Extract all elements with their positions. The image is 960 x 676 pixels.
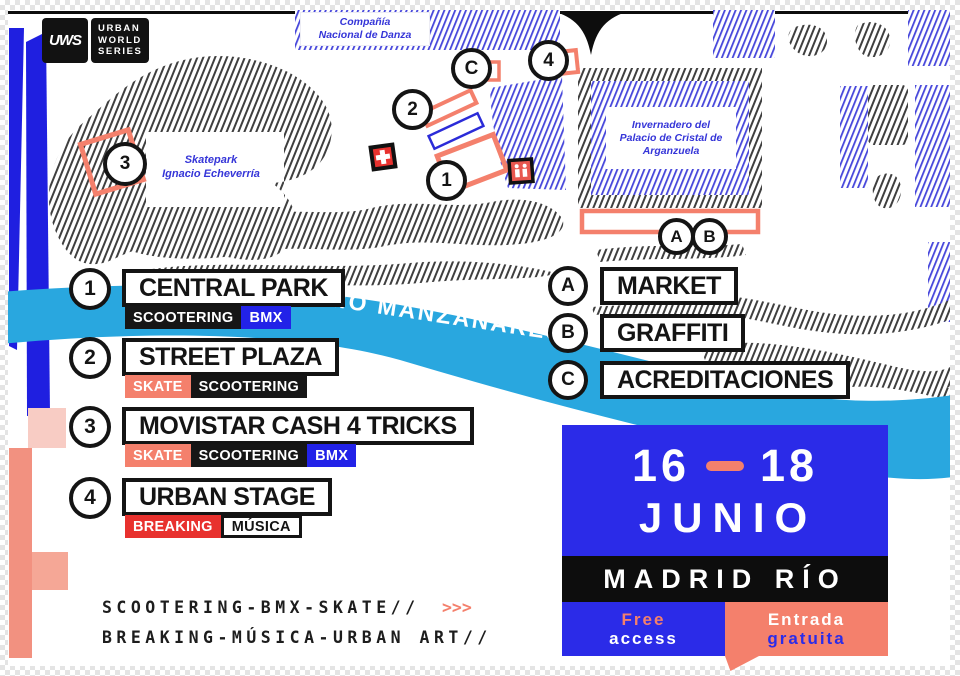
- tag-skate: SKATE: [125, 444, 191, 467]
- legend-letter-c: C: [548, 360, 588, 400]
- event-day-end: 18: [760, 440, 818, 492]
- legend-num-2: 2: [69, 337, 111, 379]
- legend-letter-a: A: [548, 266, 588, 306]
- entrada-gratuita-label: Entrada gratuita: [725, 602, 888, 656]
- disciplines-line-1: SCOOTERING-BMX-SKATE// >>>: [102, 593, 492, 623]
- entrada-line: gratuita: [767, 629, 845, 648]
- map-marker-1: 1: [426, 160, 467, 201]
- map-marker-3: 3: [103, 142, 147, 186]
- map-marker-c: C: [451, 48, 492, 89]
- tag-scootering: SCOOTERING: [125, 306, 241, 329]
- free-access-line: Free: [622, 610, 666, 629]
- date-dash-icon: [706, 461, 744, 471]
- map-marker-2: 2: [392, 89, 433, 130]
- free-access-line: access: [609, 629, 678, 648]
- disciplines-text: SCOOTERING-BMX-SKATE//: [102, 598, 420, 617]
- label-skatepark-ignacio-echeverria: Skatepark Ignacio Echeverría: [150, 142, 272, 192]
- legend-name-central-park: CENTRAL PARK: [122, 269, 345, 307]
- disciplines-footer: SCOOTERING-BMX-SKATE// >>> BREAKING-MÚSI…: [102, 593, 492, 653]
- tag-bmx: BMX: [241, 306, 290, 329]
- map-marker-a: A: [658, 218, 695, 255]
- event-dates: 16 18: [632, 440, 818, 492]
- legend-tags-3: SKATE SCOOTERING BMX: [125, 444, 356, 467]
- logo-line: URBAN: [98, 23, 149, 35]
- event-month: JUNIO: [639, 494, 817, 542]
- map-marker-4: 4: [528, 40, 569, 81]
- legend-tags-1: SCOOTERING BMX: [125, 306, 291, 329]
- uws-logo-text: URBAN WORLD SERIES: [91, 18, 149, 63]
- uws-logo: UWS URBAN WORLD SERIES: [42, 18, 149, 63]
- tag-bmx: BMX: [307, 444, 356, 467]
- free-access-label: Free access: [562, 602, 725, 656]
- legend-tags-4: BREAKING MÚSICA: [125, 515, 302, 538]
- event-map-poster: UWS URBAN WORLD SERIES Compañía Nacional…: [0, 0, 960, 676]
- event-location: MADRID RÍO: [562, 556, 888, 602]
- logo-line: WORLD: [98, 35, 149, 47]
- legend-num-3: 3: [69, 406, 111, 448]
- legend-name-urban-stage: URBAN STAGE: [122, 478, 332, 516]
- legend-name-graffiti: GRAFFITI: [600, 314, 745, 352]
- event-day-start: 16: [632, 440, 690, 492]
- label-invernadero-palacio-cristal: Invernadero del Palacio de Cristal de Ar…: [606, 107, 736, 169]
- tag-scootering: SCOOTERING: [191, 375, 307, 398]
- legend-num-4: 4: [69, 477, 111, 519]
- label-compania-nacional-danza: Compañía Nacional de Danza: [300, 12, 430, 46]
- legend-name-street-plaza: STREET PLAZA: [122, 338, 339, 376]
- uws-monogram-icon: UWS: [42, 18, 88, 63]
- legend-name-movistar-cash-4-tricks: MOVISTAR CASH 4 TRICKS: [122, 407, 474, 445]
- legend-num-1: 1: [69, 268, 111, 310]
- map-marker-b: B: [691, 218, 728, 255]
- entrada-line: Entrada: [768, 610, 845, 629]
- legend-letter-b: B: [548, 313, 588, 353]
- arrows-icon: >>>: [442, 598, 472, 617]
- event-access-row: Free access Entrada gratuita: [562, 602, 888, 656]
- disciplines-line-2: BREAKING-MÚSICA-URBAN ART//: [102, 623, 492, 653]
- logo-line: SERIES: [98, 46, 149, 58]
- tag-breaking: BREAKING: [125, 515, 221, 538]
- disciplines-text: BREAKING-MÚSICA-URBAN ART//: [102, 628, 492, 647]
- legend-tags-2: SKATE SCOOTERING: [125, 375, 307, 398]
- legend-name-market: MARKET: [600, 267, 738, 305]
- tag-skate: SKATE: [125, 375, 191, 398]
- tag-scootering: SCOOTERING: [191, 444, 307, 467]
- event-dates-panel: 16 18 JUNIO: [562, 425, 888, 556]
- event-info-box: 16 18 JUNIO MADRID RÍO Free access Entra…: [562, 425, 888, 656]
- tag-musica: MÚSICA: [221, 515, 302, 538]
- legend-name-acreditaciones: ACREDITACIONES: [600, 361, 850, 399]
